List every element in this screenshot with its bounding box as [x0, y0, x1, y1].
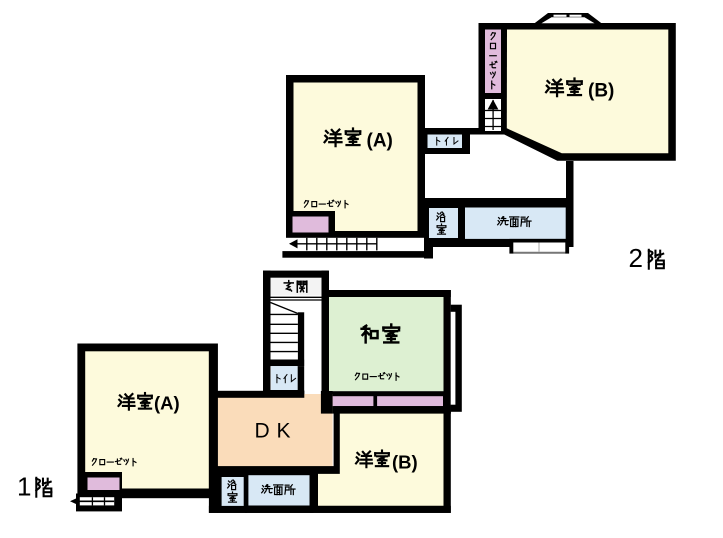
- svg-text:(B): (B): [588, 81, 614, 102]
- svg-text:D: D: [255, 420, 270, 443]
- svg-text:(B): (B): [392, 452, 418, 473]
- svg-text:1: 1: [17, 472, 31, 502]
- svg-text:2: 2: [629, 243, 643, 273]
- svg-text:(A): (A): [154, 393, 180, 414]
- svg-text:K: K: [277, 420, 291, 443]
- svg-text:(A): (A): [367, 131, 393, 152]
